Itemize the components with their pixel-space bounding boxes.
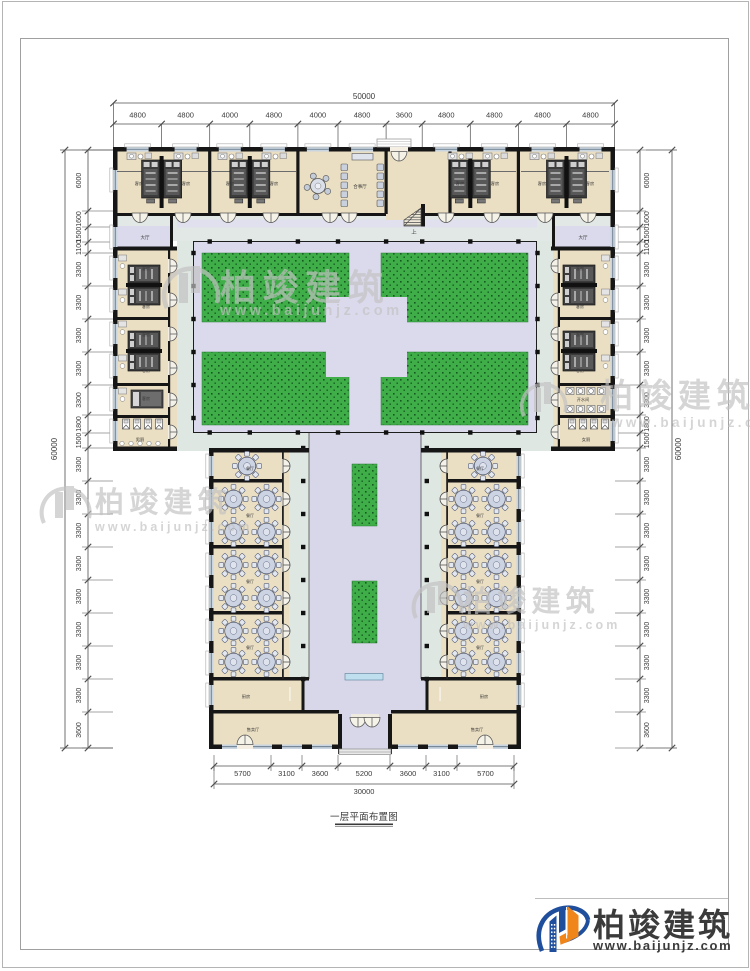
svg-text:3100: 3100 — [433, 769, 450, 778]
svg-text:客房: 客房 — [142, 367, 150, 373]
svg-text:客房: 客房 — [456, 180, 464, 187]
svg-text:餐厅: 餐厅 — [246, 644, 254, 650]
svg-text:客房: 客房 — [142, 331, 150, 337]
svg-text:3300: 3300 — [76, 655, 83, 671]
svg-text:客房: 客房 — [142, 265, 150, 271]
svg-text:1800: 1800 — [76, 416, 83, 432]
svg-text:1500: 1500 — [76, 433, 83, 449]
svg-text:3300: 3300 — [644, 490, 651, 506]
svg-text:客房: 客房 — [142, 303, 150, 309]
svg-text:www.baijunjz.com: www.baijunjz.com — [611, 415, 750, 430]
svg-text:3300: 3300 — [76, 361, 83, 377]
svg-text:3300: 3300 — [76, 688, 83, 704]
svg-text:3300: 3300 — [644, 523, 651, 539]
svg-text:3300: 3300 — [76, 262, 83, 278]
svg-text:3600: 3600 — [76, 722, 83, 738]
svg-text:5700: 5700 — [477, 769, 494, 778]
svg-text:3300: 3300 — [644, 262, 651, 278]
svg-text:3600: 3600 — [312, 769, 329, 778]
svg-text:1500: 1500 — [76, 227, 83, 243]
svg-text:客房: 客房 — [576, 367, 584, 373]
svg-text:3300: 3300 — [644, 457, 651, 473]
svg-text:4000: 4000 — [221, 111, 238, 120]
svg-text:开水间: 开水间 — [577, 396, 590, 403]
svg-text:大厅: 大厅 — [141, 234, 150, 241]
svg-text:餐厅: 餐厅 — [476, 512, 484, 518]
svg-text:客房: 客房 — [135, 180, 143, 187]
svg-text:3300: 3300 — [76, 457, 83, 473]
svg-text:大厅: 大厅 — [579, 234, 588, 241]
svg-text:合事厅: 合事厅 — [353, 183, 367, 190]
svg-text:餐厅: 餐厅 — [476, 578, 484, 584]
svg-text:3100: 3100 — [278, 769, 295, 778]
svg-text:售卖厅: 售卖厅 — [247, 726, 260, 733]
svg-text:客房: 客房 — [538, 180, 546, 187]
svg-text:客房: 客房 — [576, 331, 584, 337]
svg-text:餐厅: 餐厅 — [246, 512, 254, 518]
svg-text:www.baijunjz.com: www.baijunjz.com — [592, 938, 732, 953]
svg-text:6000: 6000 — [644, 173, 651, 189]
svg-text:柏竣建筑: 柏竣建筑 — [220, 267, 390, 308]
svg-text:女厕: 女厕 — [582, 436, 590, 443]
svg-text:3300: 3300 — [76, 295, 83, 311]
svg-text:厨房: 厨房 — [480, 693, 488, 700]
svg-text:4800: 4800 — [266, 111, 283, 120]
svg-text:3300: 3300 — [644, 361, 651, 377]
svg-text:4800: 4800 — [177, 111, 194, 120]
svg-text:柏竣建筑: 柏竣建筑 — [95, 485, 232, 519]
svg-text:餐厅: 餐厅 — [246, 465, 254, 471]
svg-text:餐厅: 餐厅 — [476, 644, 484, 650]
svg-text:客房: 客房 — [576, 265, 584, 271]
svg-text:厨房: 厨房 — [242, 693, 250, 700]
svg-text:50000: 50000 — [353, 92, 376, 101]
svg-text:1100: 1100 — [644, 240, 651, 255]
svg-text:60000: 60000 — [50, 437, 59, 460]
svg-text:餐厅: 餐厅 — [476, 465, 484, 471]
svg-text:30000: 30000 — [354, 787, 375, 796]
svg-text:3300: 3300 — [644, 295, 651, 311]
svg-text:客房: 客房 — [226, 180, 234, 187]
svg-text:一层平面布置图: 一层平面布置图 — [330, 811, 398, 823]
svg-text:3600: 3600 — [400, 769, 417, 778]
svg-text:4800: 4800 — [438, 111, 455, 120]
svg-text:3300: 3300 — [76, 523, 83, 539]
svg-text:5200: 5200 — [356, 769, 373, 778]
svg-text:5700: 5700 — [234, 769, 251, 778]
svg-text:3300: 3300 — [644, 328, 651, 344]
svg-text:客房: 客房 — [142, 395, 150, 401]
svg-text:3300: 3300 — [644, 556, 651, 572]
svg-text:4000: 4000 — [310, 111, 327, 120]
svg-text:3300: 3300 — [76, 622, 83, 638]
svg-text:客房: 客房 — [586, 180, 594, 187]
svg-text:1600: 1600 — [76, 211, 83, 227]
svg-text:3300: 3300 — [644, 589, 651, 605]
svg-text:3600: 3600 — [396, 111, 413, 120]
svg-text:3300: 3300 — [644, 622, 651, 638]
svg-text:3300: 3300 — [76, 328, 83, 344]
svg-text:售卖厅: 售卖厅 — [471, 726, 484, 733]
svg-text:4800: 4800 — [129, 111, 146, 120]
svg-text:柏竣建筑: 柏竣建筑 — [600, 377, 750, 414]
svg-text:3600: 3600 — [644, 722, 651, 738]
svg-text:客房: 客房 — [491, 180, 499, 187]
svg-text:客房: 客房 — [182, 180, 190, 187]
svg-text:4800: 4800 — [582, 111, 599, 120]
svg-text:餐厅: 餐厅 — [246, 578, 254, 584]
svg-text:1600: 1600 — [644, 211, 651, 227]
svg-text:柏竣建筑: 柏竣建筑 — [463, 584, 600, 618]
svg-text:1100: 1100 — [76, 240, 83, 255]
svg-text:3300: 3300 — [76, 392, 83, 408]
svg-text:60000: 60000 — [674, 437, 683, 460]
svg-text:上: 上 — [411, 228, 417, 236]
svg-text:3300: 3300 — [76, 556, 83, 572]
svg-text:www.baijunjz.com: www.baijunjz.com — [94, 520, 252, 534]
svg-text:3300: 3300 — [76, 589, 83, 605]
svg-text:1500: 1500 — [644, 433, 651, 449]
svg-text:3300: 3300 — [644, 655, 651, 671]
svg-text:4800: 4800 — [534, 111, 551, 120]
svg-text:客房: 客房 — [576, 303, 584, 309]
svg-text:4800: 4800 — [354, 111, 371, 120]
svg-text:客房: 客房 — [270, 180, 278, 187]
svg-text:www.baijunjz.com: www.baijunjz.com — [219, 303, 403, 319]
svg-text:6000: 6000 — [76, 173, 83, 189]
svg-text:4800: 4800 — [486, 111, 503, 120]
svg-text:3300: 3300 — [644, 688, 651, 704]
svg-text:1500: 1500 — [644, 227, 651, 243]
svg-text:www.baijunjz.com: www.baijunjz.com — [462, 618, 620, 632]
